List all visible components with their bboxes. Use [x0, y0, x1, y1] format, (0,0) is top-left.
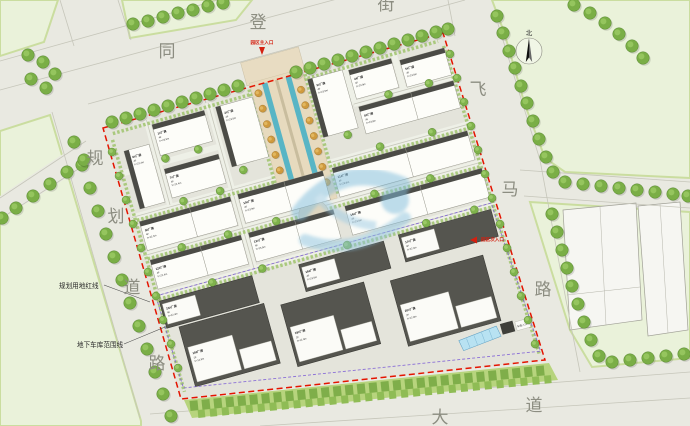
road-name-right-char3: 路 [535, 280, 552, 299]
road-name-bottom-char1: 大 [432, 408, 449, 426]
garage-line-annotation: 地下车库范围线 [77, 340, 124, 349]
road-name-top-char1: 同 [159, 42, 176, 61]
road-name-right-char2: 马 [502, 180, 519, 199]
road-name-right-char1: 飞 [470, 80, 487, 99]
site-plan-drawing: 1#厂房4Fh=23.9m 2#厂房4Fh=23.9m 3#厂房4Fh=23.9… [0, 0, 690, 426]
compass-north-label: 北 [526, 29, 533, 37]
road-name-left-char1: 规 [87, 149, 104, 168]
red-line-annotation: 规划用地红线 [59, 281, 99, 290]
main-entrance-label: 园区主入口 [251, 39, 274, 46]
secondary-entrance-label: 园区次入口 [481, 236, 504, 243]
road-name-left-char3: 道 [124, 278, 141, 297]
road-name-top-char3: 街 [378, 0, 395, 14]
master-plan: 1#厂房4Fh=23.9m 2#厂房4Fh=23.9m 3#厂房4Fh=23.9… [0, 0, 690, 426]
road-name-bottom-char2: 道 [526, 396, 543, 415]
road-name-top-char2: 登 [250, 13, 267, 32]
road-name-left-char4: 路 [149, 354, 166, 373]
offsite-buildings [563, 202, 688, 336]
road-name-left-char2: 划 [108, 207, 125, 226]
